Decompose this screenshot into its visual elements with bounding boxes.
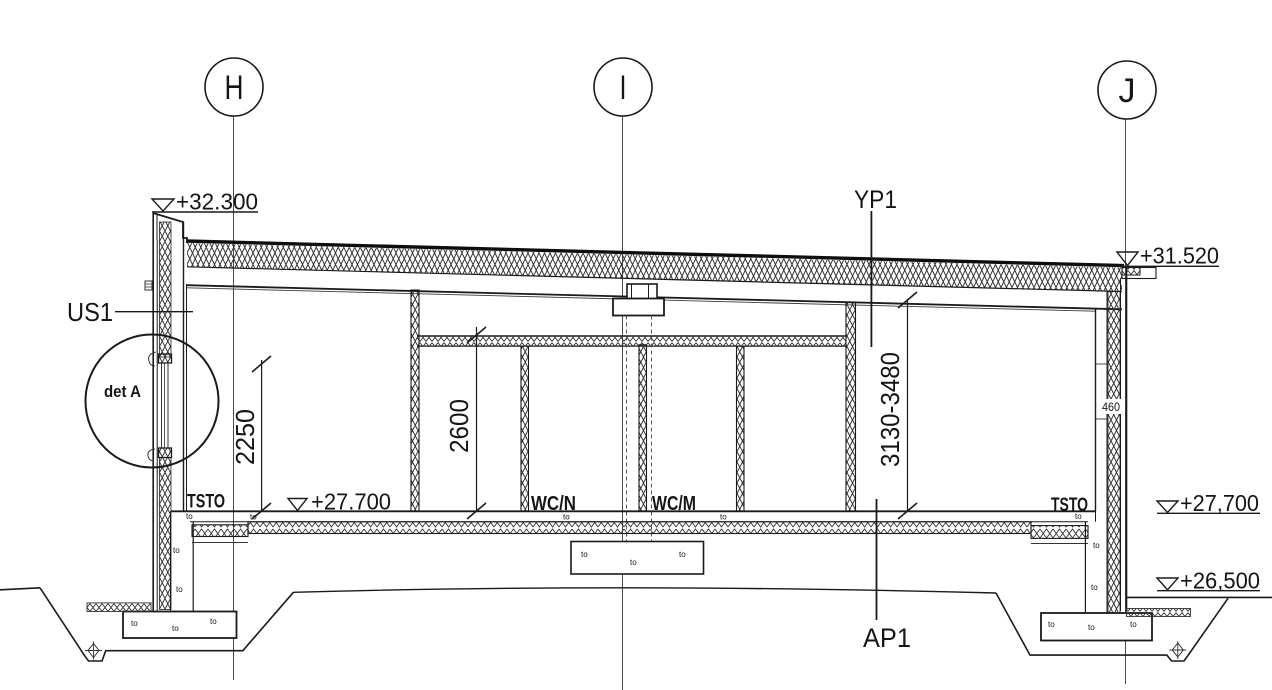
svg-text:2250: 2250 (230, 409, 260, 465)
svg-text:TSTO: TSTO (187, 492, 225, 513)
svg-text:to: to (1075, 512, 1082, 521)
svg-text:AP1: AP1 (863, 623, 911, 653)
svg-text:WC/M: WC/M (652, 493, 696, 515)
svg-text:to: to (1091, 583, 1098, 592)
svg-text:+32.300: +32.300 (176, 189, 258, 215)
svg-text:to: to (679, 550, 686, 559)
svg-text:to: to (1130, 620, 1137, 629)
svg-text:YP1: YP1 (854, 186, 897, 214)
svg-text:2600: 2600 (444, 399, 474, 453)
svg-text:+27,700: +27,700 (1180, 490, 1259, 516)
svg-text:TSTO: TSTO (1051, 495, 1088, 516)
svg-text:to: to (1088, 623, 1095, 632)
svg-text:det A: det A (104, 382, 141, 401)
svg-text:I: I (620, 69, 627, 107)
svg-text:to: to (172, 624, 179, 633)
svg-text:to: to (186, 512, 193, 521)
svg-text:to: to (210, 617, 217, 626)
svg-text:H: H (225, 69, 244, 107)
svg-text:460: 460 (1102, 400, 1120, 414)
svg-text:+31.520: +31.520 (1140, 243, 1219, 269)
svg-text:to: to (176, 585, 183, 594)
svg-text:US1: US1 (67, 297, 113, 327)
svg-text:to: to (173, 546, 180, 555)
svg-text:3130-3480: 3130-3480 (875, 352, 905, 467)
svg-text:J: J (1119, 72, 1136, 110)
svg-text:to: to (630, 558, 637, 567)
svg-text:to: to (1093, 541, 1100, 550)
svg-text:to: to (131, 619, 138, 628)
svg-text:to: to (720, 513, 727, 522)
svg-text:+26,500: +26,500 (1180, 568, 1260, 594)
svg-text:to: to (581, 550, 588, 559)
svg-text:WC/N: WC/N (531, 493, 576, 515)
svg-text:to: to (1048, 620, 1055, 629)
svg-text:+27.700: +27.700 (311, 489, 391, 515)
